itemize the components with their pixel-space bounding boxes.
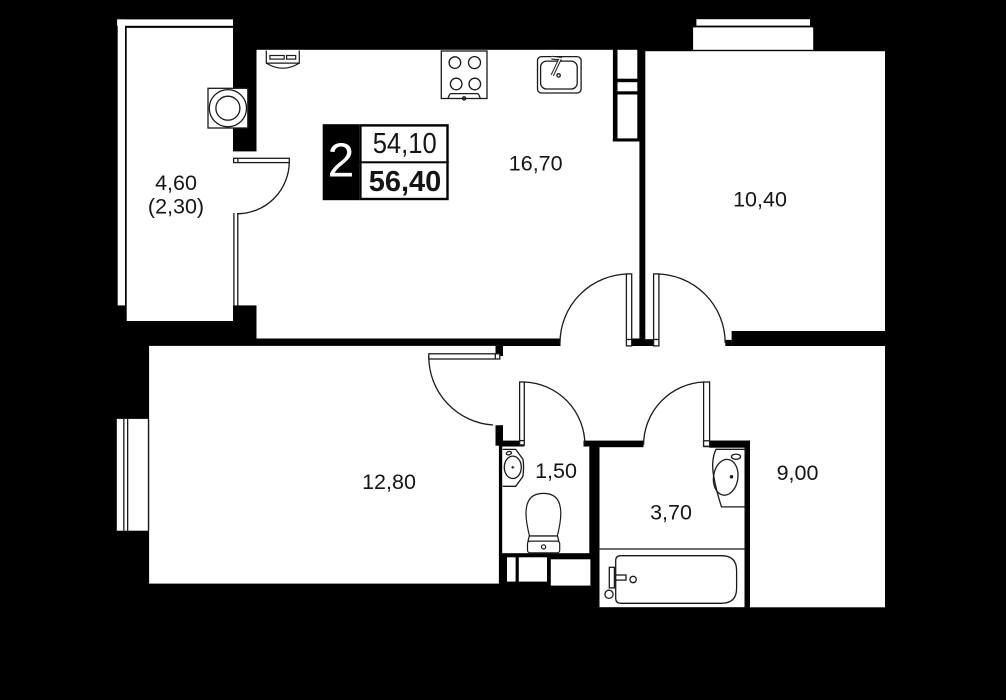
svg-text:(2,30): (2,30) [148, 195, 204, 219]
svg-text:10,40: 10,40 [733, 188, 787, 212]
svg-text:2: 2 [328, 134, 355, 187]
svg-text:3,70: 3,70 [650, 501, 692, 525]
svg-text:16,70: 16,70 [509, 152, 563, 176]
svg-text:12,80: 12,80 [362, 470, 416, 494]
svg-text:4,60: 4,60 [155, 171, 197, 195]
svg-text:54,10: 54,10 [373, 128, 437, 160]
svg-text:1,50: 1,50 [535, 459, 577, 483]
svg-text:56,40: 56,40 [369, 166, 442, 198]
svg-text:9,00: 9,00 [777, 461, 819, 485]
